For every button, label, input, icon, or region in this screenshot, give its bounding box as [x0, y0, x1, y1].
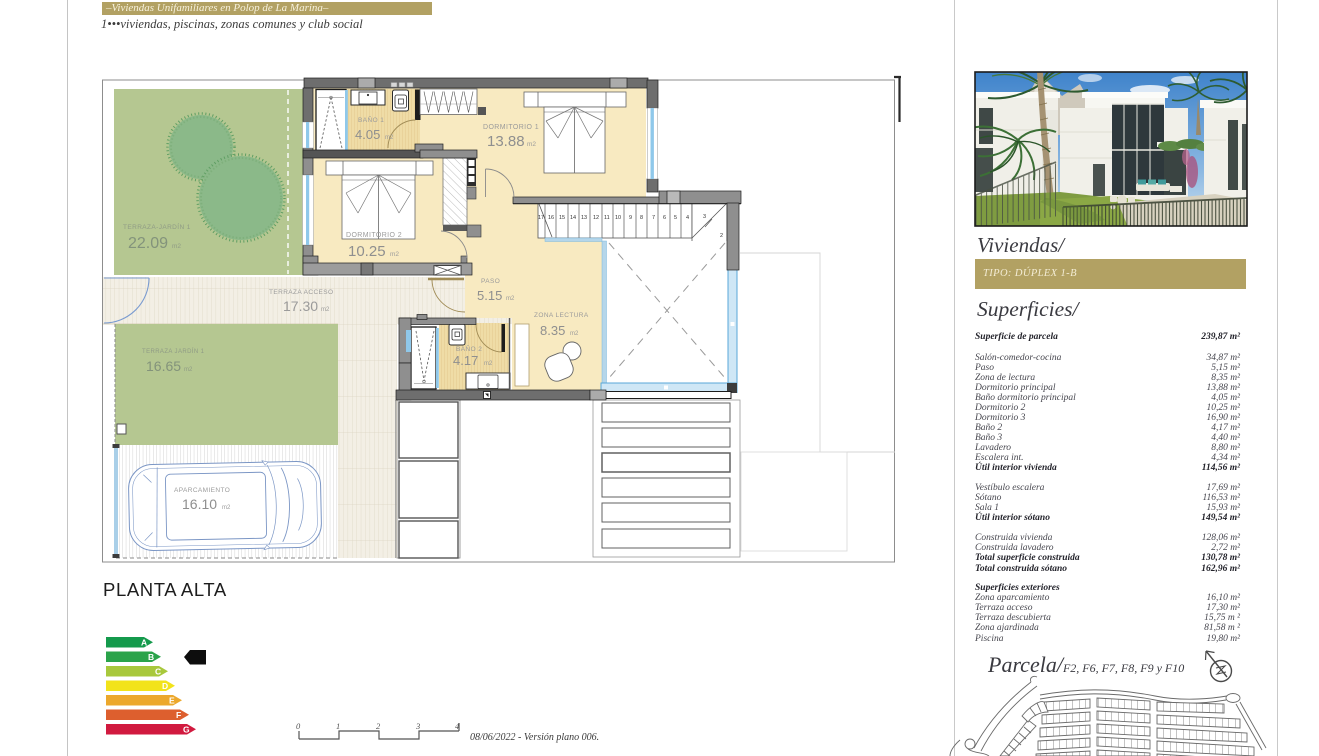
- svg-text:5.15: 5.15: [477, 288, 502, 303]
- svg-text:1: 1: [336, 721, 340, 731]
- svg-text:17.30: 17.30: [283, 298, 318, 314]
- svg-text:APARCAMIENTO: APARCAMIENTO: [174, 487, 230, 494]
- svg-text:m2: m2: [184, 367, 193, 373]
- svg-text:2: 2: [376, 721, 381, 731]
- svg-text:15: 15: [559, 215, 565, 221]
- svg-text:2: 2: [720, 233, 723, 239]
- svg-text:4: 4: [686, 215, 689, 221]
- svg-text:A: A: [141, 638, 147, 648]
- svg-text:16: 16: [548, 215, 554, 221]
- svg-text:8: 8: [640, 215, 643, 221]
- svg-text:m2: m2: [570, 331, 579, 337]
- svg-text:13: 13: [581, 215, 587, 221]
- svg-text:F: F: [176, 710, 181, 720]
- svg-text:16.65: 16.65: [146, 358, 181, 374]
- svg-text:E: E: [169, 696, 175, 706]
- svg-text:9: 9: [629, 215, 632, 221]
- svg-text:TERRAZA-JARDÍN 1: TERRAZA-JARDÍN 1: [123, 222, 191, 231]
- svg-text:6: 6: [663, 215, 666, 221]
- svg-text:TERRAZA JARDÍN 1: TERRAZA JARDÍN 1: [142, 348, 205, 355]
- svg-text:08/06/2022 - Versión plano 006: 08/06/2022 - Versión plano 006.: [470, 732, 599, 743]
- svg-text:G: G: [183, 725, 190, 735]
- svg-text:PASO: PASO: [481, 278, 500, 285]
- svg-text:C: C: [155, 667, 161, 677]
- svg-text:7: 7: [652, 215, 655, 221]
- svg-text:DORMITORIO 2: DORMITORIO 2: [346, 232, 402, 239]
- svg-text:TERRAZA ACCESO: TERRAZA ACCESO: [269, 289, 333, 296]
- svg-text:ZONA LECTURA: ZONA LECTURA: [534, 312, 589, 319]
- svg-text:22.09: 22.09: [128, 235, 168, 252]
- svg-text:8.35: 8.35: [540, 323, 565, 338]
- svg-text:10: 10: [615, 215, 621, 221]
- svg-text:4.05: 4.05: [355, 127, 380, 142]
- svg-text:m2: m2: [484, 361, 493, 367]
- svg-text:D: D: [162, 681, 168, 691]
- svg-text:3: 3: [415, 721, 420, 731]
- svg-text:3: 3: [703, 214, 706, 220]
- svg-text:14: 14: [570, 215, 576, 221]
- svg-text:m2: m2: [385, 135, 394, 141]
- svg-text:0: 0: [296, 721, 301, 731]
- svg-text:13.88: 13.88: [487, 133, 525, 150]
- svg-text:m2: m2: [527, 141, 536, 148]
- svg-text:16.10: 16.10: [182, 496, 217, 512]
- svg-text:10.25: 10.25: [348, 243, 386, 260]
- svg-text:5: 5: [674, 215, 677, 221]
- svg-text:m2: m2: [321, 307, 330, 313]
- svg-text:12: 12: [593, 215, 599, 221]
- svg-text:11: 11: [604, 215, 610, 221]
- svg-text:m2: m2: [172, 243, 181, 250]
- svg-text:m2: m2: [222, 505, 231, 511]
- svg-text:BAÑO 2: BAÑO 2: [456, 344, 482, 353]
- svg-text:4.17: 4.17: [453, 353, 478, 368]
- svg-text:B: B: [148, 652, 154, 662]
- svg-text:DORMITORIO 1: DORMITORIO 1: [483, 124, 539, 131]
- svg-text:17: 17: [538, 215, 544, 221]
- svg-text:m2: m2: [390, 251, 399, 258]
- svg-text:BAÑO 1: BAÑO 1: [358, 115, 384, 124]
- svg-text:m2: m2: [506, 296, 515, 302]
